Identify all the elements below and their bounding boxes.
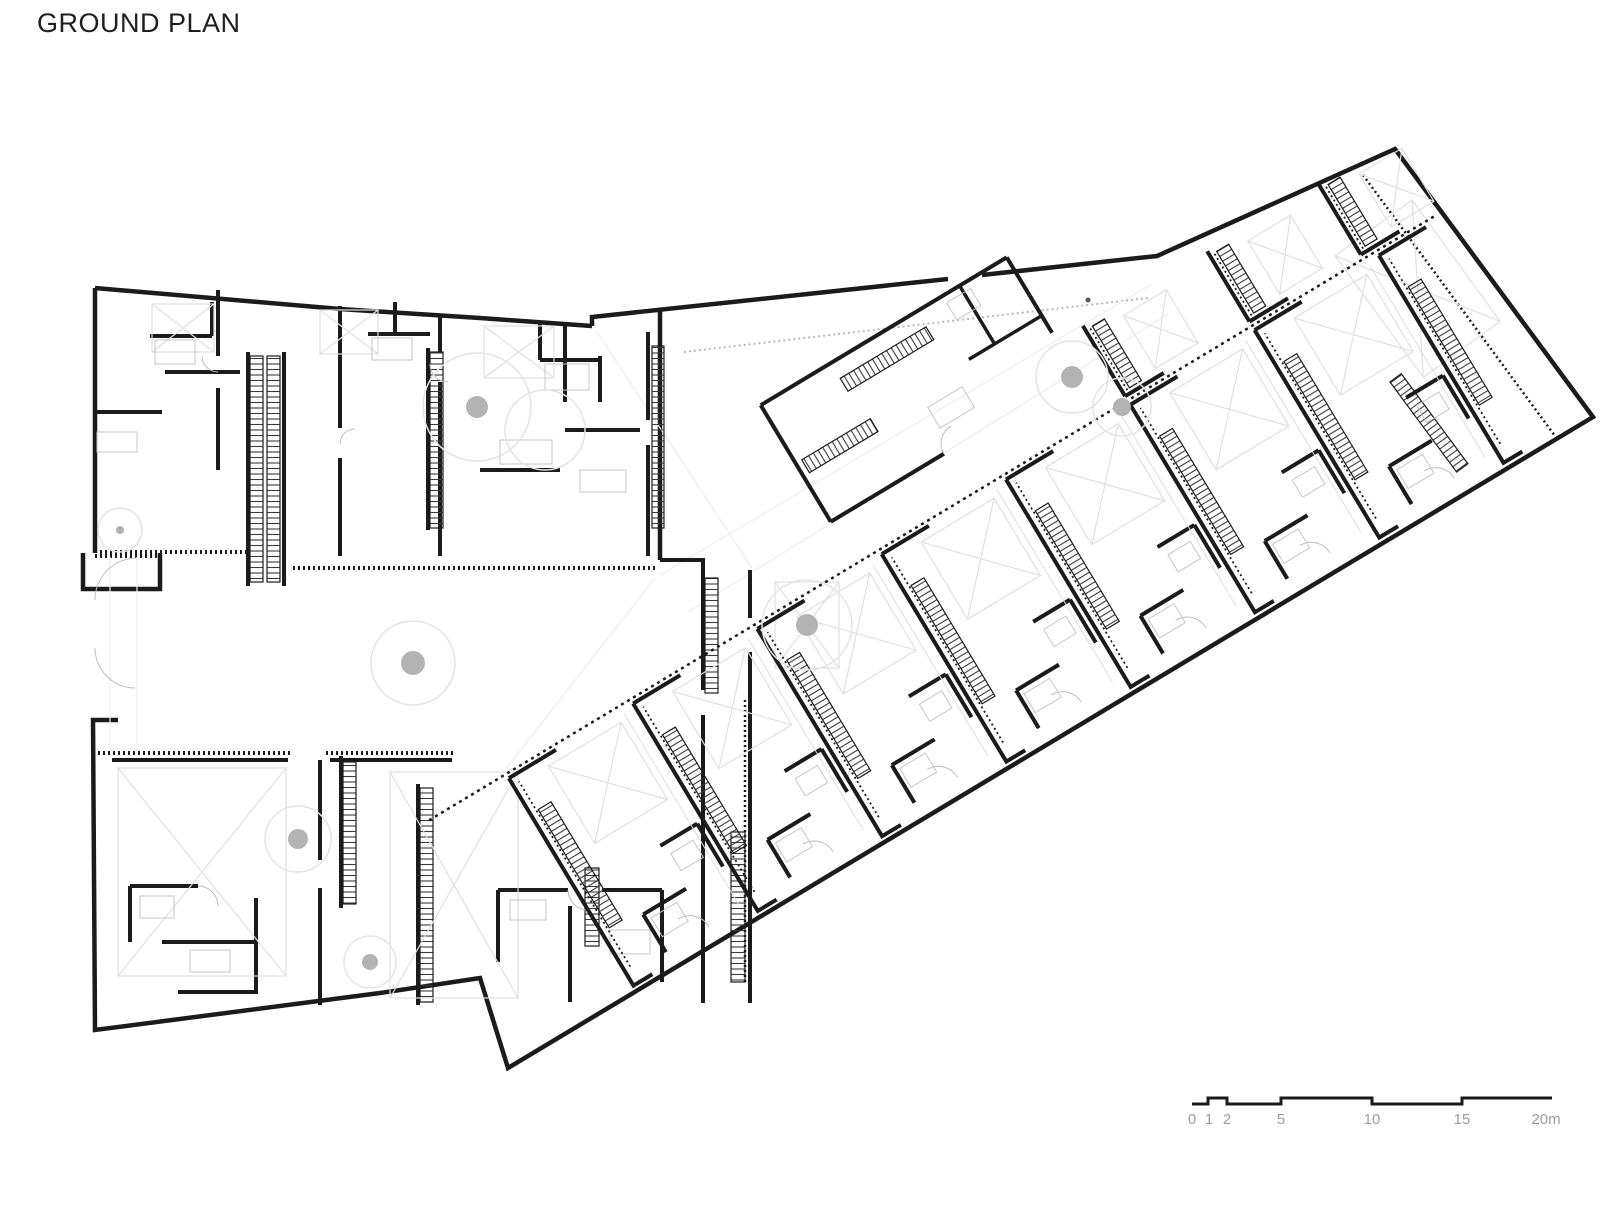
scale-label: 0 bbox=[1188, 1111, 1196, 1128]
stair-runs bbox=[250, 346, 1468, 1002]
upper-left-block-walls bbox=[95, 290, 703, 586]
wing-spine-dotted-line bbox=[429, 215, 1436, 820]
scale-label: 10 bbox=[1364, 1111, 1381, 1128]
scale-bar: 0 1 2 5 10 15 20m bbox=[1188, 1098, 1561, 1128]
survey-point-dot bbox=[1086, 298, 1091, 303]
dotted-wall-bands bbox=[93, 175, 1558, 985]
scale-label: 15 bbox=[1454, 1111, 1471, 1128]
ground-plan-sheet: GROUND PLAN bbox=[0, 0, 1600, 1223]
scale-label: 5 bbox=[1277, 1111, 1285, 1128]
scale-bar-line bbox=[1192, 1098, 1552, 1104]
scale-label: 2 bbox=[1223, 1111, 1231, 1128]
floor-plan-drawing: 0 1 2 5 10 15 20m bbox=[0, 0, 1600, 1223]
building-outline bbox=[83, 149, 1593, 1068]
scale-label: 20m bbox=[1531, 1111, 1560, 1128]
street-side-unit bbox=[761, 257, 1077, 521]
scale-label: 1 bbox=[1205, 1111, 1213, 1128]
